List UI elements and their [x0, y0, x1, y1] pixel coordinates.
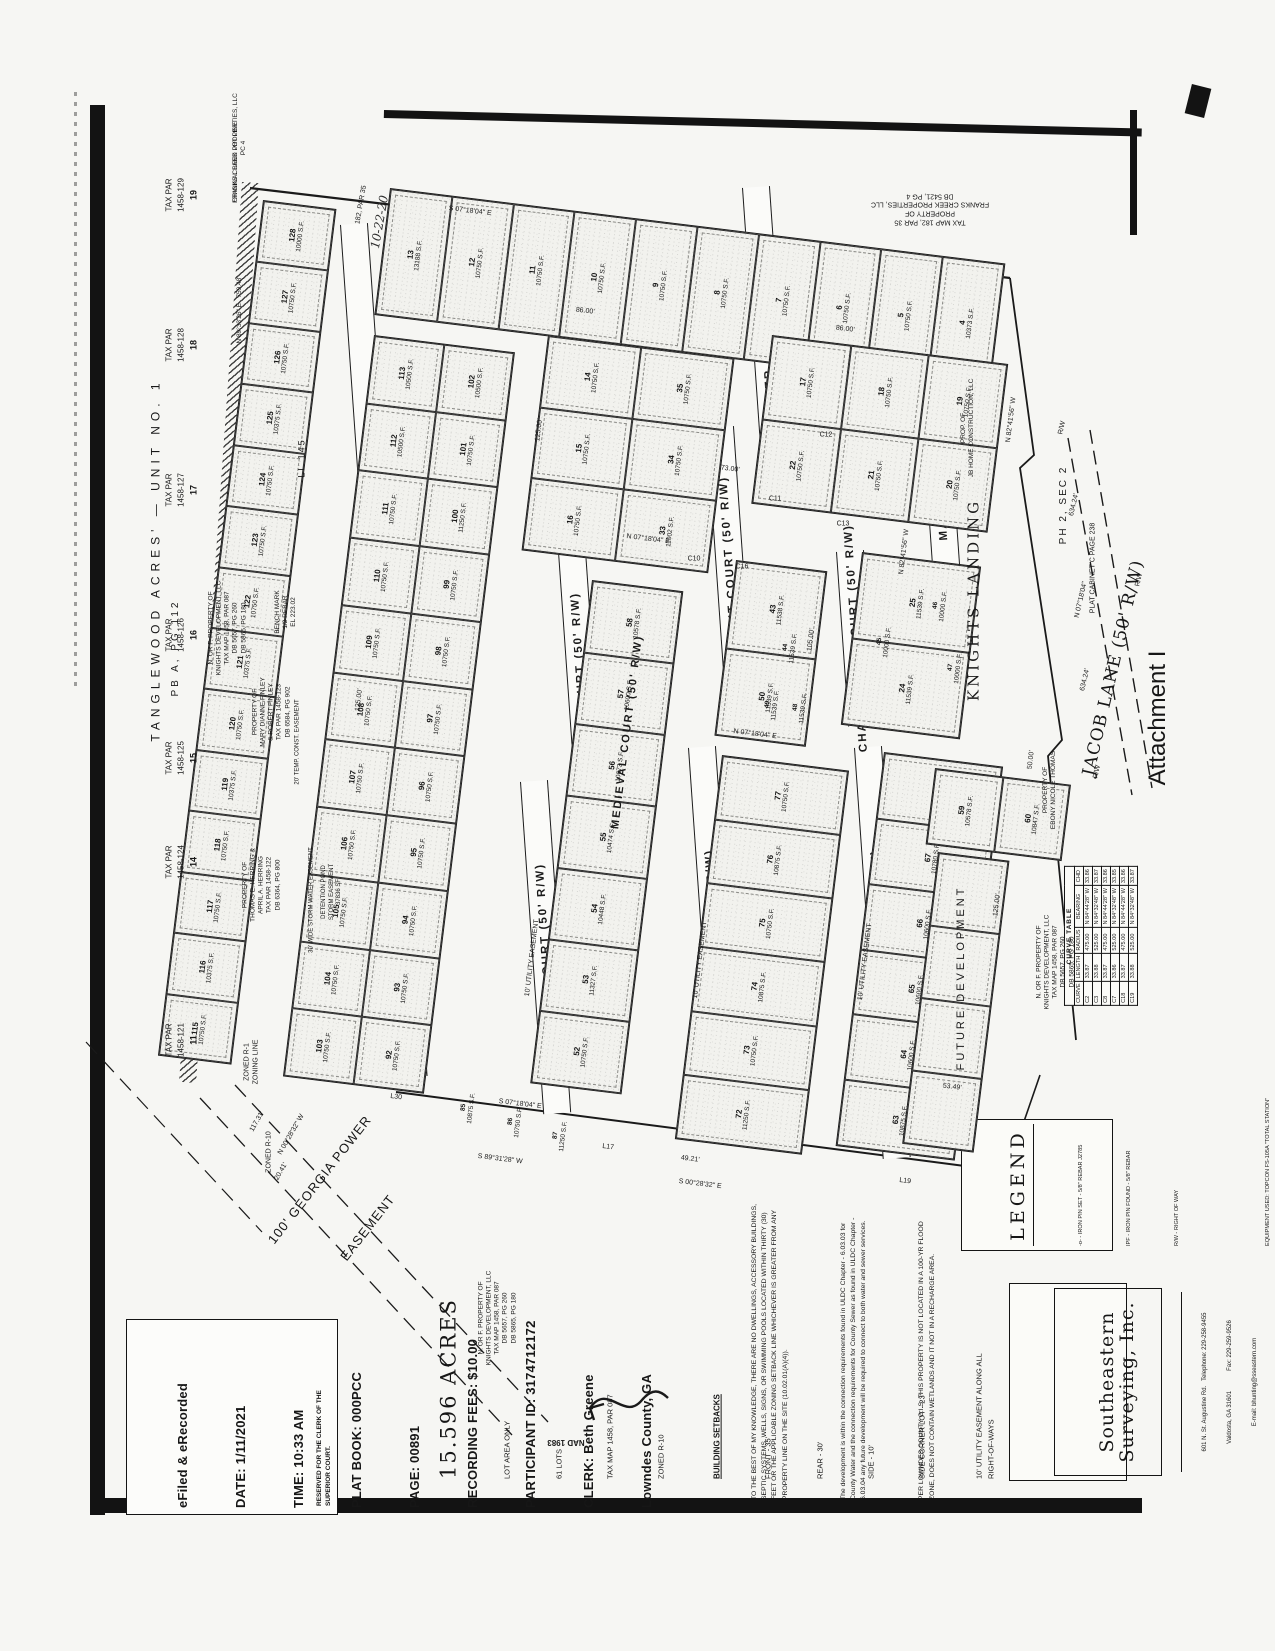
- note-paragraph: TO THE BEST OF MY KNOWLEDGE, THERE ARE N…: [750, 1200, 791, 1500]
- lot-label: 7211250 S.F.: [733, 1098, 753, 1130]
- legend-item: IPF - IRON PIN FOUND - 5/8" REBAR: [1125, 1124, 1133, 1246]
- owner-annotation: PROPERTY OFMARY DIANNE FINLEY& ROBERT FI…: [252, 677, 293, 746]
- owner-annotation: N. OR F. PROPERTY OFKNIGHTS DEVELOPMENT,…: [208, 581, 249, 676]
- recording-stamp: eFiled & eRecorded DATE: 1/11/2021 TIME:…: [86, 1319, 378, 1515]
- lot-label: 11110750 S.F.: [379, 492, 399, 525]
- summary-line: TAX MAP 1458, PAR 087: [604, 1265, 615, 1479]
- lot-cell: 9510750 S.F.: [378, 815, 456, 891]
- owner-annotation: PROP. OFJB HOME CONSTRUCTION, LLC: [960, 379, 976, 478]
- legend-note: EQUIPMENT USED: TOPCON FS-105A "TOTAL ST…: [1264, 1124, 1272, 1246]
- lot-label: 10410750 S.F.: [321, 963, 341, 996]
- lot-cell: 11010750 S.F.: [342, 538, 420, 614]
- owner-annotation: ZONED R-1ZONING LINE: [243, 1040, 261, 1085]
- curve-table-row: C233.87475.00N 84°44'28" W33.86: [1084, 867, 1093, 1006]
- lot-label: 1110750 S.F.: [527, 254, 547, 287]
- lot-label: 910750 S.F.: [649, 269, 669, 302]
- owner-annotation: N. OR F. PROPERTY OFKNIGHTS DEVELOPMENT,…: [478, 1271, 519, 1366]
- lot-cell: 9610750 S.F.: [387, 748, 465, 824]
- owner-annotation: BENCH MARK1/2 REBAREL 223.02: [274, 590, 298, 633]
- owner-annotation: DETENTION PONDSTORM EASEMENT37836 SF: [321, 864, 344, 920]
- lot-cell: 11610375 S.F.: [167, 933, 246, 1003]
- lot-cell: 9810750 S.F.: [403, 614, 481, 690]
- lot-cell: 1510750 S.F.: [531, 407, 632, 489]
- lot-label: 11610375 S.F.: [196, 951, 216, 984]
- lot-label: 10110750 S.F.: [457, 433, 477, 466]
- dimension-label: L19: [899, 1177, 912, 1187]
- lot-cell: 3410750 S.F.: [624, 419, 725, 501]
- lot-cell: 5210750 S.F.: [531, 1011, 629, 1094]
- nad-label: NAD 1983: [547, 1437, 584, 1447]
- lot-cell: 6010847 S.F.: [994, 777, 1070, 860]
- lot-cell: 1410750 S.F.: [540, 336, 641, 418]
- adjacent-parcel-label: TAX PAR1458-12515: [163, 741, 201, 775]
- lot-cell: 10011250 S.F.: [420, 479, 498, 555]
- lot-cell: 1710750 S.F.: [763, 336, 851, 429]
- lot-cell: 10710750 S.F.: [317, 739, 395, 815]
- lot-cell: 2010750 S.F.: [909, 439, 997, 532]
- dimension-label: C16: [736, 564, 749, 573]
- stamp-reserved-note: RESERVED FOR THE CLERK OF THE SUPERIOR C…: [316, 1390, 333, 1506]
- attachment-label: Attachment I: [1143, 651, 1173, 786]
- lot-cell: 9310750 S.F.: [362, 950, 440, 1026]
- lot-cell: 10310750 S.F.: [284, 1008, 362, 1084]
- adjacent-parcel-label: TAX PAR1458-12111: [163, 1023, 201, 1057]
- owner-annotation: 20' TEMP. CONST. EASEMENT: [294, 699, 302, 784]
- curve-table-row: C733.86525.00N 84°32'48" W33.85: [1111, 867, 1120, 1006]
- lot-cell: 5910578 S.F.: [927, 769, 1003, 852]
- lot-label: 1010750 S.F.: [588, 262, 608, 295]
- lot-label: 6010847 S.F.: [1022, 802, 1042, 835]
- owner-annotation: PH 2, SEC 2: [1058, 466, 1071, 545]
- lot-label: 9610750 S.F.: [416, 769, 436, 802]
- lot-cell: 1810750 S.F.: [841, 346, 929, 439]
- lot-label: 510750 S.F.: [895, 299, 915, 332]
- lot-label: 12010750 S.F.: [226, 707, 246, 740]
- owner-annotation: ZONED R-10: [266, 1131, 275, 1173]
- lot-label: 9310750 S.F.: [391, 971, 411, 1004]
- lot-label: 5910578 S.F.: [955, 794, 975, 827]
- lot-cell: 10910750 S.F.: [334, 605, 412, 681]
- curve-table-row: C833.87475.00N 84°44'28" W33.86: [1102, 867, 1111, 1006]
- lot-label: 11310500 S.F.: [396, 358, 416, 391]
- lot-label: 410373 S.F.: [956, 307, 976, 340]
- curve-table-row: C333.88525.00N 84°32'48" W33.87: [1093, 867, 1102, 1006]
- lot-label: 1810750 S.F.: [875, 376, 895, 409]
- lot-label: 610750 S.F.: [833, 292, 853, 325]
- lot-cell: 5311327 S.F.: [540, 939, 638, 1022]
- lot-label: [938, 1110, 947, 1111]
- legend-title: LEGEND: [1007, 1124, 1034, 1246]
- lot-label: 7310750 S.F.: [740, 1034, 760, 1067]
- surveyor-name: SoutheasternSurveying, Inc.: [1098, 1292, 1138, 1472]
- owner-annotation: PROPERTY OFEBONY NICOLE THOMAS: [1042, 751, 1058, 829]
- lot-label: 9810750 S.F.: [432, 635, 452, 668]
- lot-label: 10011250 S.F.: [449, 501, 469, 533]
- lot-label: 3510750 S.F.: [673, 372, 693, 405]
- stamp-line: eFiled & eRecorded: [174, 1326, 192, 1508]
- owner-annotation: PB A, PG 112: [170, 600, 183, 697]
- lot-block: 2511539 S.F.2411539 S.F.: [841, 552, 981, 739]
- dimension-label: L17: [602, 1143, 615, 1153]
- lot-cell: 2511539 S.F.: [852, 553, 980, 653]
- lot-label: 1210750 S.F.: [465, 247, 485, 280]
- lot-label: 12310750 S.F.: [249, 524, 269, 557]
- owner-annotation: 30' WIDE STORM WATER EASEMENT: [308, 847, 316, 953]
- curve-table-row: C1833.87475.00N 84°44'28" W33.86: [1120, 867, 1129, 1006]
- lot-label: 11910375 S.F.: [219, 768, 239, 801]
- adjacent-parcel-label: TAX PAR1458-12919: [163, 178, 201, 212]
- lot-label: 3410750 S.F.: [664, 443, 684, 476]
- summary-line: ZONED R-10: [656, 1265, 667, 1479]
- lot-label: 1313188 S.F.: [404, 239, 424, 272]
- owner-annotation: N. OR F. PROPERTY OFKNIGHTS DEVELOPMENT,…: [1036, 915, 1077, 1010]
- lot-label: 1510750 S.F.: [572, 432, 592, 465]
- lot-label: 9210750 S.F.: [383, 1038, 403, 1071]
- lot-cell: 1610750 S.F.: [523, 478, 624, 560]
- lot-label: 7710750 S.F.: [772, 779, 792, 812]
- lot-label: 7510750 S.F.: [756, 907, 776, 940]
- lot-label: 2110750 S.F.: [865, 459, 885, 492]
- owner-annotation: N 89°33'26" E 759.48': [236, 276, 244, 343]
- adjacent-parcel-label: TAX PAR1458-12414: [163, 845, 201, 879]
- lot-label: 9710750 S.F.: [424, 702, 444, 735]
- lot-label: 12710750 S.F.: [279, 281, 299, 314]
- lot-cell: 9210750 S.F.: [354, 1017, 432, 1093]
- lot-cell: 9710750 S.F.: [395, 681, 473, 757]
- lot-cell: 11110750 S.F.: [350, 471, 428, 547]
- lot-cell: 12310750 S.F.: [219, 506, 298, 576]
- lot-cell: 3510750 S.F.: [632, 347, 733, 429]
- lot-cell: 3311002 S.F.: [615, 490, 716, 572]
- lot-label: 10910750 S.F.: [363, 626, 383, 659]
- lot-label: 7610875 S.F.: [764, 843, 784, 876]
- lot-label: 12810000 S.F.: [286, 220, 306, 253]
- lot-cell: 12810000 S.F.: [256, 201, 335, 271]
- owner-annotation: FRANKS CREEK PROPERTIES, LLCPC 4: [232, 93, 248, 203]
- lot-label: 11810750 S.F.: [211, 829, 231, 862]
- lot-cell: 10110750 S.F.: [428, 412, 506, 488]
- stamp-line: TIME: 10:33 AM: [290, 1326, 308, 1508]
- lot-label: 1610750 S.F.: [563, 503, 583, 536]
- curve-table-row: C1933.88525.00N 84°32'48" W33.87: [1129, 867, 1138, 1006]
- owner-annotation: KNIGHTS LANDING: [965, 499, 984, 701]
- note-paragraph: The development is within the connection…: [839, 1200, 870, 1500]
- lot-label: 2210750 S.F.: [787, 450, 807, 483]
- lot-label: 4311538 S.F.: [766, 594, 786, 626]
- stamp-line: DATE: 1/11/2021: [232, 1326, 250, 1508]
- lot-cell: 10210500 S.F.: [436, 345, 514, 421]
- lot-label: 5311327 S.F.: [579, 964, 599, 996]
- lot-cell: 9910750 S.F.: [411, 546, 489, 622]
- owner-annotation: LL 145: [296, 438, 307, 477]
- lot-label: 7410875 S.F.: [748, 970, 768, 1003]
- owner-annotation: PROPERTY OFTHOMAS E. HERRING &APRIL A. H…: [242, 848, 283, 922]
- lot-label: 10310750 S.F.: [313, 1030, 333, 1063]
- lot-label: 2511539 S.F.: [906, 587, 926, 619]
- acreage-value: 15.596 ACRES: [436, 1265, 462, 1479]
- dimension-label: C11: [769, 496, 781, 505]
- lot-label: 5410448 S.F.: [588, 892, 608, 925]
- lot-label: 5210750 S.F.: [571, 1036, 591, 1069]
- lot-label: 10710750 S.F.: [346, 761, 366, 794]
- lot-label: 710750 S.F.: [772, 284, 792, 317]
- lot-label: 11010750 S.F.: [371, 559, 391, 592]
- lot-label: 9410750 S.F.: [399, 904, 419, 937]
- dimension-label: C12: [820, 432, 833, 441]
- owner-annotation: FUTURE DEVELOPMENT: [955, 886, 969, 1071]
- dimension-label: L30: [390, 1093, 403, 1103]
- lot-cell: 10410750 S.F.: [292, 941, 370, 1017]
- lot-label: 2411539 S.F.: [896, 672, 916, 704]
- lot-cell: 12410750 S.F.: [226, 445, 305, 515]
- lot-cell: 10810750 S.F.: [325, 672, 403, 748]
- legend-item: R/W - RIGHT OF WAY: [1173, 1124, 1181, 1246]
- lot-cell: 9410750 S.F.: [370, 882, 448, 958]
- lot-cell: [912, 998, 990, 1079]
- lot-label: 810750 S.F.: [711, 277, 731, 310]
- dimension-label: C10: [688, 556, 701, 565]
- lot-cell: 5510474 S.F.: [558, 796, 656, 879]
- lot-label: 11210500 S.F.: [387, 425, 407, 458]
- owner-annotation: TANGLEWOOD ACRES' — UNIT NO. 1: [149, 378, 164, 741]
- lot-label: 12610750 S.F.: [271, 342, 291, 375]
- lot-cell: 11310500 S.F.: [367, 336, 445, 412]
- lot-cell: 11910375 S.F.: [189, 750, 268, 820]
- surveyor-title-block: SoutheasternSurveying, Inc. 601 N. St. A…: [969, 1283, 1167, 1481]
- lot-label: 9910750 S.F.: [440, 568, 460, 601]
- lot-cell: 12610750 S.F.: [241, 323, 320, 393]
- plat-scan-page: eFiled & eRecorded DATE: 1/11/2021 TIME:…: [0, 0, 1275, 1651]
- lot-cell: 5410448 S.F.: [549, 868, 647, 951]
- owner-annotation: TAX MAP 182, PAR 35PROPERTY OFFRANKS CRE…: [871, 191, 989, 226]
- adjacent-parcel-label: TAX PAR1458-12717: [163, 473, 201, 507]
- lot-label: 9510750 S.F.: [407, 837, 427, 870]
- lot-label: 11710750 S.F.: [204, 890, 224, 923]
- adjacent-parcel-label: TAX PAR1458-12818: [163, 328, 201, 362]
- lot-label: 1710750 S.F.: [797, 366, 817, 399]
- lot-label: 1410750 S.F.: [581, 361, 601, 394]
- lot-label: 12410750 S.F.: [256, 463, 276, 496]
- lot-label: 10610750 S.F.: [338, 828, 358, 861]
- dimension-label: C13: [837, 521, 850, 530]
- lot-cell: 12710750 S.F.: [249, 262, 328, 332]
- owner-annotation: PLAT CABINET C PAGE 238: [1090, 523, 1099, 614]
- legend-item: -o- - IRON PIN SET - 5/8" REBAR J2785: [1077, 1124, 1085, 1246]
- lot-label: 12510375 S.F.: [264, 402, 284, 435]
- lot-cell: 11210500 S.F.: [358, 403, 436, 479]
- lot-cell: 2110750 S.F.: [830, 429, 918, 522]
- surveyor-address: 601 N. St. Augustine Rd. Telephone: 229-…: [1181, 1292, 1275, 1472]
- lot-label: 10210500 S.F.: [465, 366, 485, 399]
